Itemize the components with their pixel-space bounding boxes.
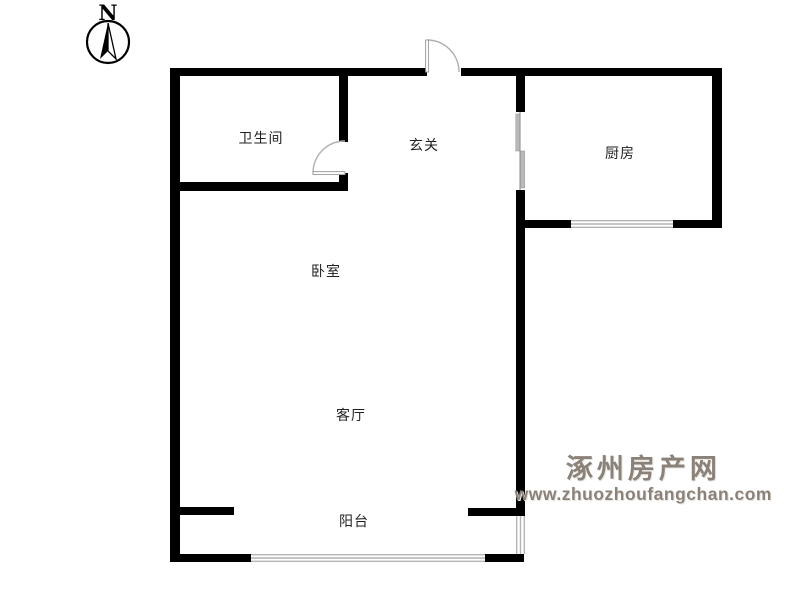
wall-bottom-left-seg: [170, 554, 251, 562]
wall-bathroom-right-upper: [339, 76, 348, 142]
kitchen-sliding-door-icon: [516, 112, 525, 190]
floorplan-canvas: N: [0, 0, 800, 600]
wall-kitchen-bottom-left-seg: [517, 220, 571, 228]
wall-top-left-of-entry: [170, 68, 427, 76]
room-label-kitchen: 厨房: [605, 143, 635, 163]
balcony-side-window-icon: [516, 516, 525, 554]
room-label-bedroom: 卧室: [311, 261, 341, 281]
room-label-bathroom: 卫生间: [239, 128, 284, 148]
wall-top-right-of-entry: [461, 68, 722, 76]
room-label-hallway: 玄关: [409, 135, 439, 155]
room-label-living-room: 客厅: [336, 405, 366, 425]
wall-bathroom-bottom: [170, 182, 348, 191]
wall-balcony-stub-right: [468, 508, 524, 516]
wall-kitchen-bottom-right-seg: [673, 220, 722, 228]
compass-needle-left: [100, 23, 108, 59]
wall-balcony-stub-left: [180, 507, 234, 515]
watermark-url: www.zhuozhoufangchan.com: [515, 485, 772, 504]
compass-needle-right: [108, 23, 116, 59]
watermark: 涿州房产网 www.zhuozhoufangchan.com: [515, 455, 772, 504]
watermark-site-name: 涿州房产网: [515, 455, 772, 485]
bathroom-door-icon: [313, 141, 345, 175]
entry-door-icon: [426, 40, 459, 72]
balcony-window-icon: [251, 554, 485, 562]
wall-bathroom-right-lower: [339, 173, 348, 191]
wall-left: [170, 68, 180, 561]
compass-icon: N: [87, 0, 129, 63]
wall-hall-kitchen-upper: [516, 76, 525, 112]
kitchen-window-icon: [571, 220, 673, 228]
wall-kitchen-right: [712, 68, 722, 228]
room-label-balcony: 阳台: [339, 511, 369, 531]
wall-bottom-right-seg: [485, 554, 524, 562]
floorplan-drawing: N: [0, 0, 800, 600]
